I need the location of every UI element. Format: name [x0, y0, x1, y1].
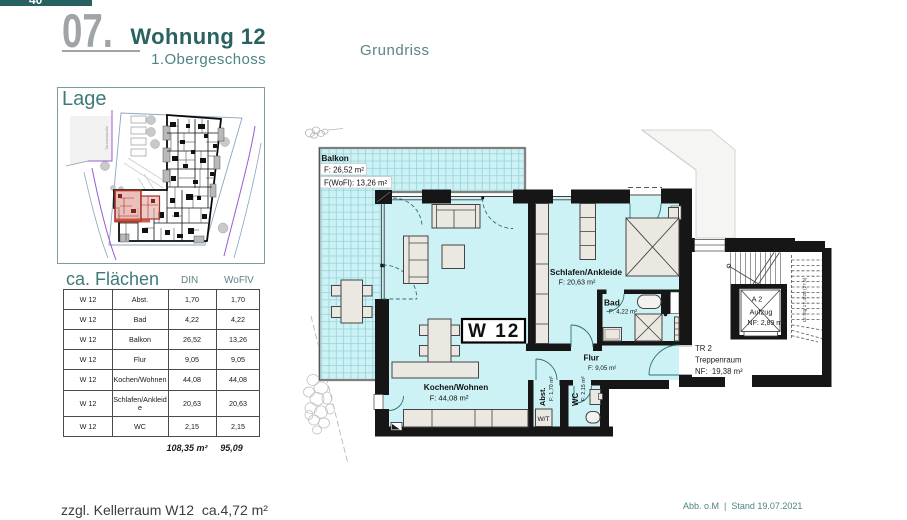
svg-text:WC: WC: [571, 392, 580, 406]
svg-text:Treppenraum: Treppenraum: [695, 356, 742, 365]
svg-text:Kochen/Wohnen: Kochen/Wohnen: [424, 383, 488, 392]
svg-text:F: 26,52 m²: F: 26,52 m²: [324, 165, 364, 174]
svg-text:F: 2,15 m²: F: 2,15 m²: [581, 376, 587, 401]
svg-text:F: 20,63 m²: F: 20,63 m²: [559, 278, 596, 287]
svg-text:F: 44,08 m²: F: 44,08 m²: [430, 394, 469, 403]
svg-text:NF: 2,89 m²: NF: 2,89 m²: [748, 320, 786, 327]
svg-text:12 Stg 17,4/28 (27,5): 12 Stg 17,4/28 (27,5): [802, 277, 808, 322]
svg-text:Abst.: Abst.: [538, 388, 547, 406]
svg-text:F: 1,70 m²: F: 1,70 m²: [549, 376, 555, 401]
svg-text:Flur: Flur: [584, 354, 600, 363]
svg-text:F: 4,22 m²: F: 4,22 m²: [609, 309, 637, 316]
svg-text:Balkon: Balkon: [322, 154, 349, 163]
svg-text:A 2: A 2: [752, 295, 763, 304]
svg-text:W/T: W/T: [537, 416, 549, 423]
svg-text:TR 2: TR 2: [695, 344, 712, 353]
svg-text:Schlafen/Ankleide: Schlafen/Ankleide: [550, 267, 622, 277]
svg-text:Bad: Bad: [604, 298, 620, 308]
svg-text:F: 9,05 m²: F: 9,05 m²: [588, 365, 616, 372]
svg-text:Aufzug: Aufzug: [749, 308, 772, 317]
svg-text:NF: 19,38 m²: NF: 19,38 m²: [695, 367, 743, 376]
svg-text:W 12: W 12: [468, 321, 520, 342]
svg-text:F(WoFl): 13,26 m²: F(WoFl): 13,26 m²: [324, 178, 388, 187]
